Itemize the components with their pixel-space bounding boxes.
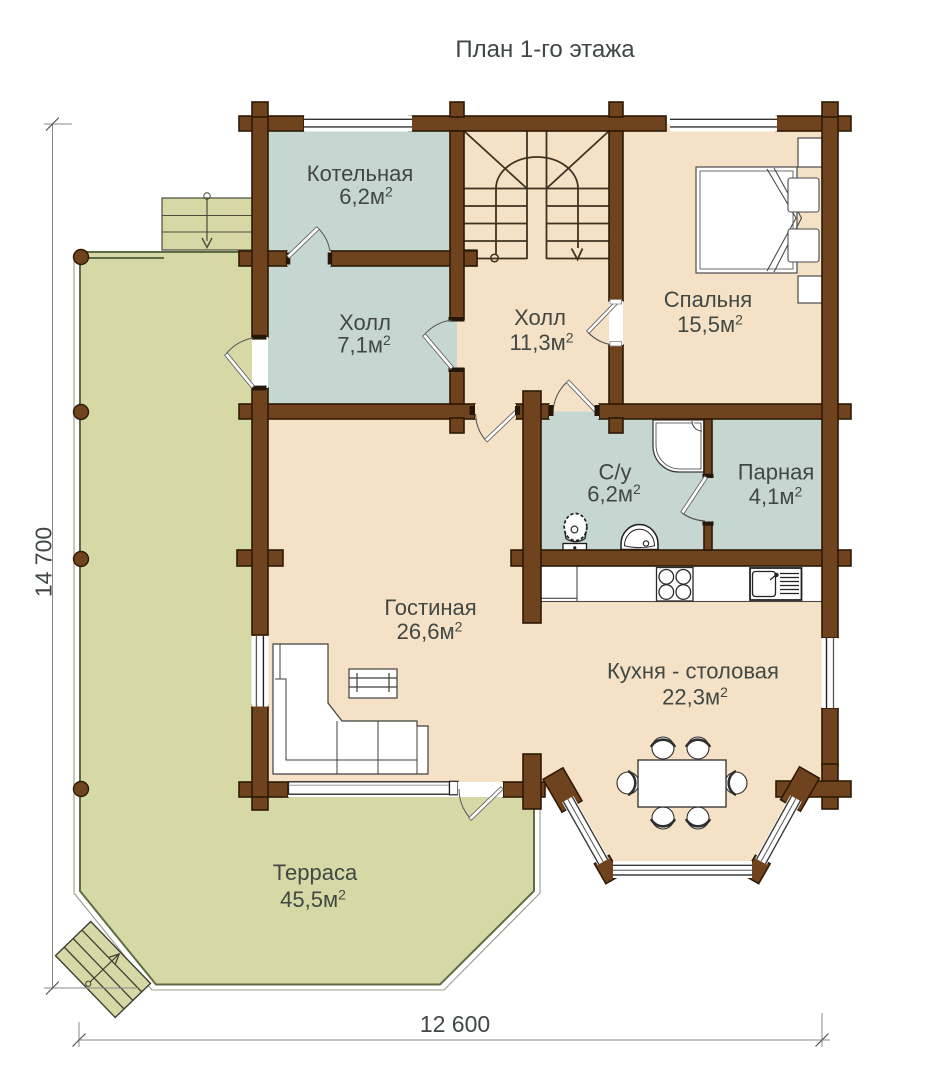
svg-text:Терраса: Терраса (273, 860, 358, 885)
svg-text:22,3м2: 22,3м2 (662, 684, 728, 710)
svg-text:14 700: 14 700 (31, 527, 57, 597)
svg-text:Котельная: Котельная (307, 161, 414, 186)
svg-text:15,5м2: 15,5м2 (677, 312, 743, 338)
svg-text:26,6м2: 26,6м2 (397, 619, 463, 645)
svg-text:Спальня: Спальня (664, 287, 752, 312)
svg-text:Гостиная: Гостиная (384, 595, 476, 620)
svg-text:Холл: Холл (514, 305, 566, 330)
svg-text:7,1м2: 7,1м2 (337, 332, 391, 358)
svg-text:6,2м2: 6,2м2 (339, 184, 393, 210)
svg-text:45,5м2: 45,5м2 (280, 887, 346, 913)
svg-text:План 1-го этажа: План 1-го этажа (455, 36, 635, 63)
svg-text:Кухня - столовая: Кухня - столовая (607, 659, 779, 684)
svg-text:6,2м2: 6,2м2 (587, 481, 641, 507)
svg-text:11,3м2: 11,3м2 (509, 330, 573, 356)
svg-text:4,1м2: 4,1м2 (749, 484, 803, 510)
svg-text:12 600: 12 600 (420, 1011, 490, 1037)
svg-text:Парная: Парная (738, 460, 815, 485)
